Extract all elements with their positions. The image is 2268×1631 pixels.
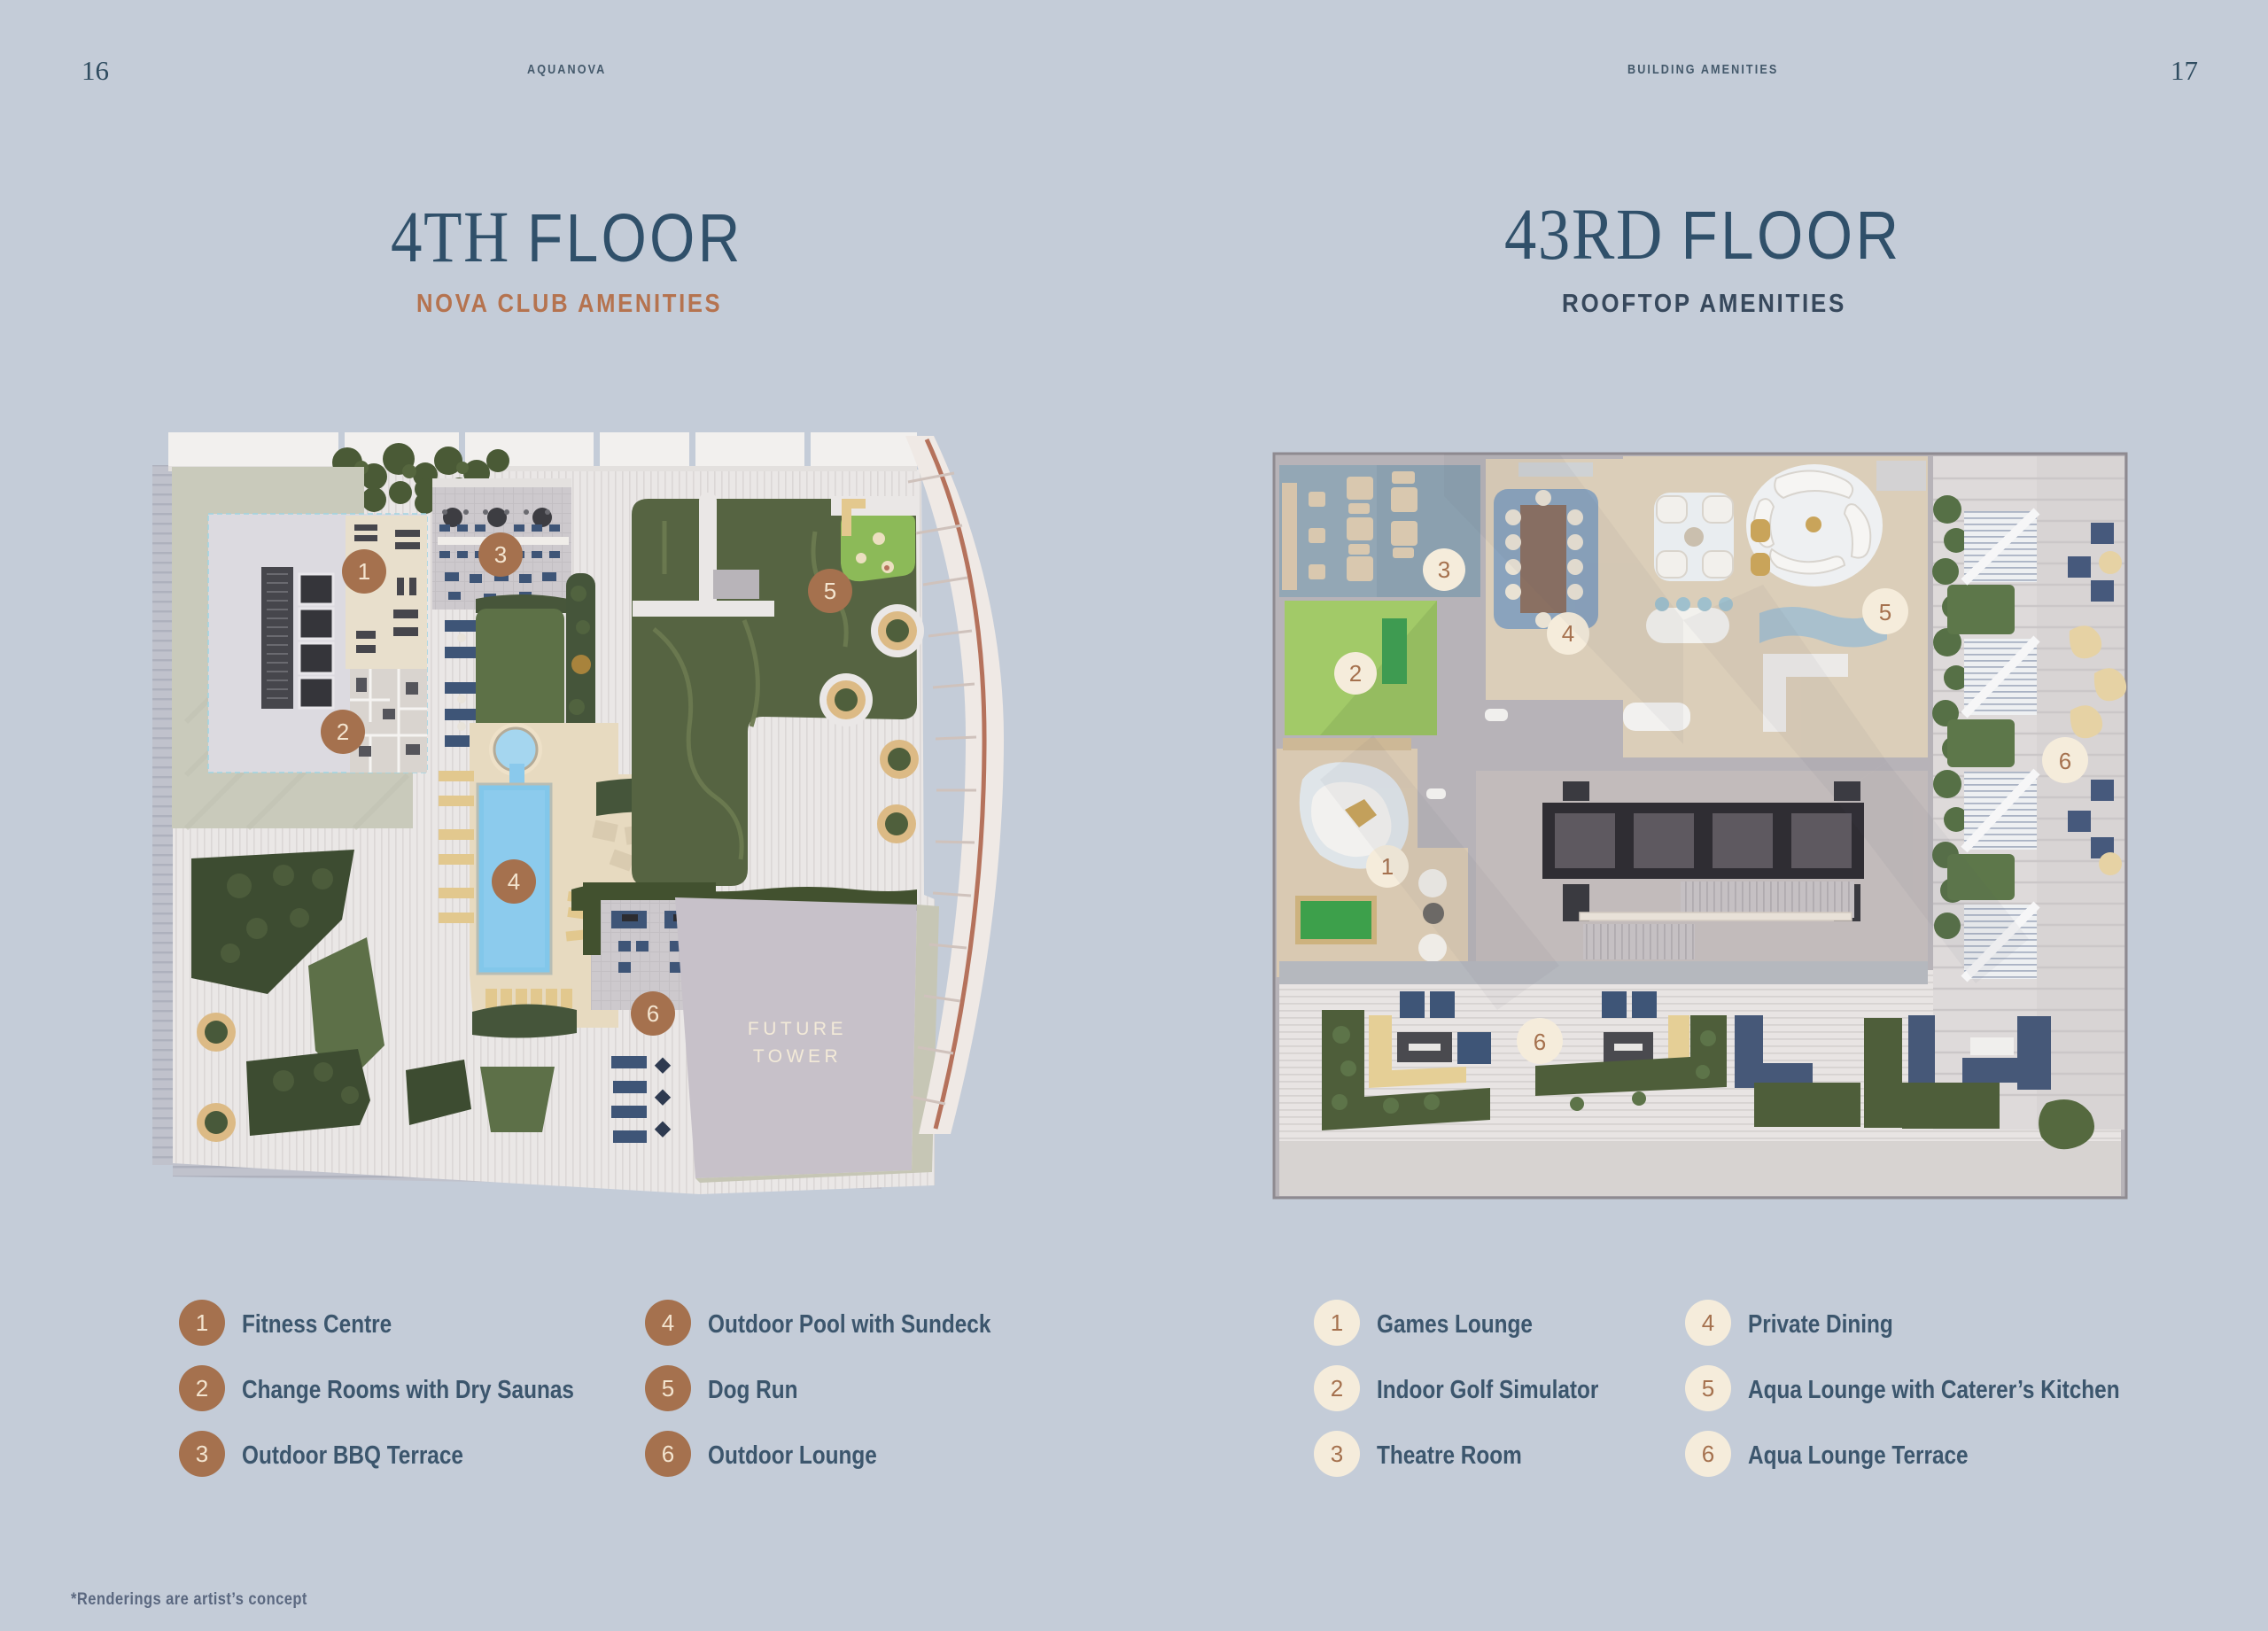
svg-text:5: 5 xyxy=(824,578,836,604)
svg-text:5: 5 xyxy=(1879,599,1891,625)
svg-text:2: 2 xyxy=(337,718,349,745)
svg-text:6: 6 xyxy=(647,1000,659,1027)
svg-text:6: 6 xyxy=(2059,748,2071,774)
svg-text:FUTURE: FUTURE xyxy=(748,1019,847,1039)
svg-text:6: 6 xyxy=(1534,1029,1546,1055)
svg-text:1: 1 xyxy=(358,558,370,585)
svg-text:TOWER: TOWER xyxy=(753,1046,842,1067)
svg-text:3: 3 xyxy=(494,541,507,568)
svg-text:2: 2 xyxy=(1349,660,1362,687)
svg-text:3: 3 xyxy=(1438,556,1450,583)
svg-text:4: 4 xyxy=(508,868,520,895)
